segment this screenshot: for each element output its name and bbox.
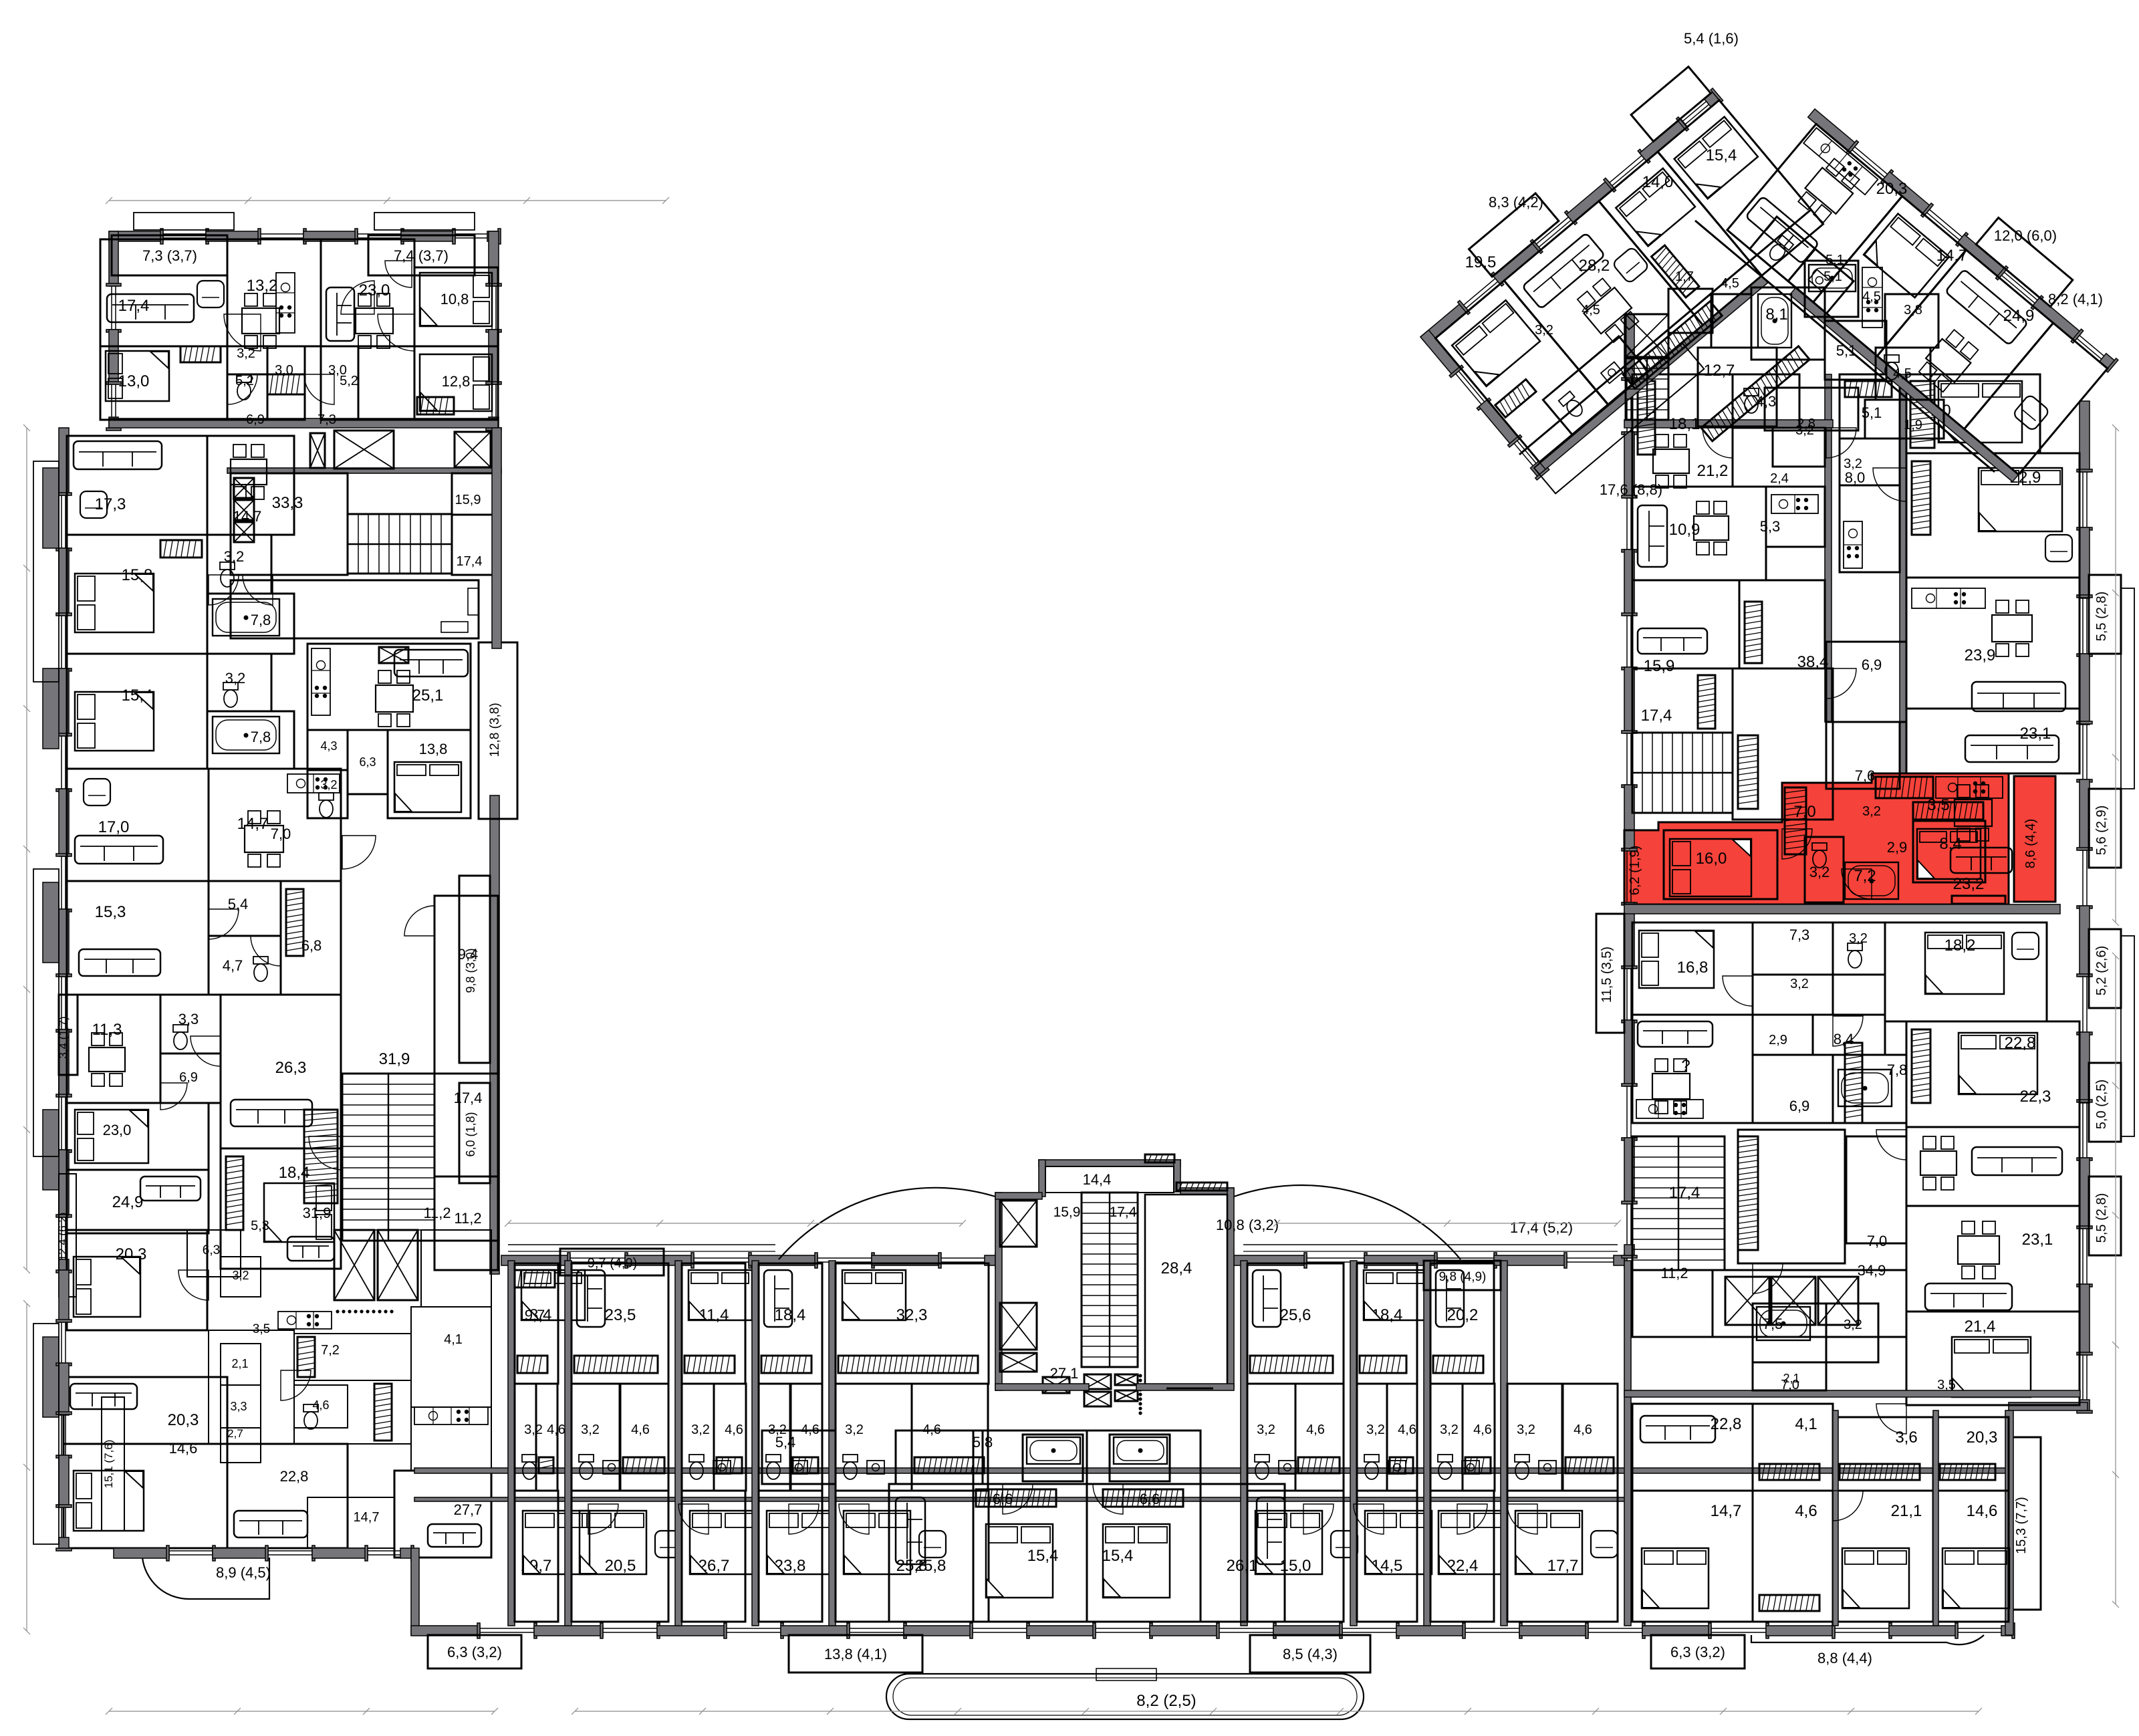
svg-text:8,2 (4,1): 8,2 (4,1) (2048, 291, 2103, 307)
svg-text:3,2: 3,2 (1809, 864, 1830, 880)
svg-text:28,2: 28,2 (1579, 257, 1610, 275)
svg-text:3,2: 3,2 (1844, 1318, 1862, 1332)
svg-text:32,3: 32,3 (896, 1306, 928, 1324)
svg-text:3,2: 3,2 (1440, 1422, 1459, 1437)
svg-text:10,8: 10,8 (441, 291, 469, 307)
svg-text:5,4 (1,6): 5,4 (1,6) (1684, 30, 1739, 47)
svg-text:3,2: 3,2 (1257, 1422, 1275, 1437)
svg-text:20,3: 20,3 (168, 1411, 199, 1429)
svg-text:2,9: 2,9 (1769, 1033, 1787, 1047)
svg-text:25,8: 25,8 (915, 1557, 947, 1575)
svg-text:3,2: 3,2 (691, 1422, 710, 1437)
svg-text:3,2: 3,2 (1790, 977, 1809, 991)
svg-text:8,3 (4,2): 8,3 (4,2) (1489, 194, 1543, 211)
svg-text:22,3: 22,3 (2020, 1088, 2051, 1106)
svg-text:25,6: 25,6 (1280, 1306, 1311, 1324)
svg-text:4,6: 4,6 (1398, 1422, 1416, 1437)
svg-text:9,7: 9,7 (525, 1307, 545, 1324)
svg-text:15,3 (7,7): 15,3 (7,7) (2014, 1497, 2029, 1554)
svg-text:3,2: 3,2 (320, 778, 337, 791)
svg-text:17,4: 17,4 (1110, 1205, 1137, 1220)
svg-text:8,6 (4,4): 8,6 (4,4) (2023, 819, 2038, 868)
svg-text:7,2: 7,2 (321, 1343, 340, 1358)
svg-text:7,8: 7,8 (251, 729, 271, 745)
svg-text:3,2: 3,2 (232, 1269, 249, 1282)
svg-text:26,1: 26,1 (1227, 1557, 1258, 1575)
svg-text:4,1: 4,1 (444, 1332, 463, 1347)
svg-text:15,4: 15,4 (1027, 1547, 1059, 1565)
svg-text:5,8: 5,8 (973, 1434, 993, 1451)
svg-text:2,4: 2,4 (1770, 471, 1789, 486)
svg-text:2,8: 2,8 (1797, 416, 1815, 431)
svg-text:17,3: 17,3 (95, 495, 126, 513)
svg-text:4,5: 4,5 (1893, 366, 1912, 381)
svg-text:1,9: 1,9 (1904, 418, 1922, 432)
svg-text:4,6: 4,6 (312, 1398, 329, 1412)
svg-text:10,9: 10,9 (1669, 521, 1701, 539)
svg-text:15,9: 15,9 (1644, 657, 1675, 675)
svg-text:5,0 (2,5): 5,0 (2,5) (2094, 1080, 2109, 1129)
svg-text:6,3 (3,2): 6,3 (3,2) (447, 1644, 502, 1660)
svg-text:17,4: 17,4 (1669, 1184, 1701, 1202)
svg-text:3,2: 3,2 (1535, 323, 1553, 338)
svg-text:4,6: 4,6 (725, 1422, 743, 1437)
svg-text:23,0: 23,0 (103, 1122, 132, 1138)
svg-text:22,8: 22,8 (2005, 1034, 2036, 1052)
svg-text:15,3: 15,3 (95, 903, 126, 921)
svg-text:7,3 (3,7): 7,3 (3,7) (142, 247, 197, 264)
svg-text:21,4: 21,4 (1965, 1318, 1996, 1336)
svg-text:17,4: 17,4 (457, 554, 483, 569)
svg-text:2,1: 2,1 (231, 1357, 248, 1370)
svg-text:12,8 (3,8): 12,8 (3,8) (488, 703, 502, 757)
svg-text:10,8 (3,2): 10,8 (3,2) (1216, 1217, 1279, 1233)
svg-text:24,9: 24,9 (2003, 307, 2035, 325)
svg-text:3,2: 3,2 (524, 1422, 543, 1437)
svg-text:2,7: 2,7 (227, 1427, 243, 1440)
svg-text:6,9: 6,9 (1862, 656, 1882, 673)
svg-text:23,2: 23,2 (1953, 875, 1985, 893)
svg-text:20,3: 20,3 (1967, 1429, 1998, 1447)
svg-text:26,3: 26,3 (275, 1059, 307, 1077)
svg-text:14,0: 14,0 (1642, 173, 1674, 191)
svg-text:5,5 (2,8): 5,5 (2,8) (2094, 1193, 2109, 1243)
svg-text:20,3: 20,3 (1876, 180, 1908, 198)
svg-text:23,1: 23,1 (2020, 725, 2051, 743)
svg-text:19,5: 19,5 (1465, 253, 1497, 271)
svg-text:7,3: 7,3 (318, 412, 336, 427)
svg-text:17,6 (8,8): 17,6 (8,8) (1600, 481, 1662, 498)
svg-text:14,4: 14,4 (1083, 1171, 1112, 1188)
svg-text:14,7: 14,7 (1711, 1502, 1742, 1520)
svg-text:14,6: 14,6 (1967, 1502, 1998, 1520)
svg-text:11,2: 11,2 (454, 1210, 481, 1227)
svg-text:3,5: 3,5 (253, 1322, 270, 1336)
svg-text:15,4: 15,4 (1102, 1547, 1134, 1565)
svg-text:3,2: 3,2 (1862, 804, 1881, 819)
svg-text:8,9 (4,5): 8,9 (4,5) (216, 1564, 271, 1581)
svg-text:7,8: 7,8 (251, 612, 271, 628)
svg-text:5,6 (2,9): 5,6 (2,9) (2094, 805, 2109, 855)
svg-text:22,8: 22,8 (280, 1468, 309, 1485)
svg-text:6,9: 6,9 (1789, 1098, 1810, 1114)
svg-text:11,3: 11,3 (92, 1021, 122, 1039)
svg-text:7,5: 7,5 (1763, 1316, 1783, 1332)
svg-text:9,8 (4,9): 9,8 (4,9) (1439, 1270, 1487, 1284)
svg-text:5,2: 5,2 (235, 374, 254, 388)
svg-text:18,4: 18,4 (775, 1306, 806, 1324)
svg-text:4,6: 4,6 (1574, 1422, 1592, 1437)
svg-text:8,5 (4,3): 8,5 (4,3) (1283, 1646, 1338, 1662)
svg-text:23,9: 23,9 (1965, 646, 1996, 664)
svg-text:5,2 (2,6): 5,2 (2,6) (2094, 946, 2109, 995)
svg-text:9,8 (3,0): 9,8 (3,0) (464, 948, 477, 993)
svg-text:15,1 (7,6): 15,1 (7,6) (102, 1440, 115, 1489)
svg-text:27,7: 27,7 (454, 1501, 483, 1518)
svg-text:21,1: 21,1 (1891, 1502, 1922, 1520)
svg-text:17,4: 17,4 (118, 297, 150, 315)
svg-text:5,5 (2,8): 5,5 (2,8) (2094, 592, 2109, 641)
svg-text:18,1: 18,1 (1669, 415, 1701, 433)
svg-text:14,7: 14,7 (233, 508, 262, 525)
svg-text:4,6: 4,6 (1473, 1422, 1492, 1437)
svg-text:17,4: 17,4 (1641, 707, 1672, 725)
svg-text:28,4: 28,4 (1161, 1259, 1192, 1277)
svg-text:6,3: 6,3 (203, 1243, 220, 1257)
svg-text:7,4 (3,7): 7,4 (3,7) (394, 247, 449, 264)
svg-text:16,8: 16,8 (1677, 959, 1709, 977)
svg-text:3,2: 3,2 (1517, 1422, 1535, 1437)
svg-text:8,0: 8,0 (1845, 469, 1866, 486)
svg-text:13,8: 13,8 (419, 741, 448, 757)
svg-text:4,6: 4,6 (631, 1422, 650, 1437)
svg-text:14,7: 14,7 (354, 1510, 380, 1525)
svg-text:3,2: 3,2 (845, 1422, 864, 1437)
svg-text:21,2: 21,2 (1697, 462, 1729, 480)
svg-text:4,5: 4,5 (1582, 303, 1600, 318)
svg-text:7,0: 7,0 (1867, 1233, 1888, 1249)
svg-text:12,0 (6,0): 12,0 (6,0) (1994, 227, 2057, 244)
svg-text:3,8: 3,8 (1904, 303, 1922, 318)
svg-text:18,2: 18,2 (1944, 937, 1976, 955)
svg-text:15,4: 15,4 (1706, 146, 1737, 164)
svg-text:33,3: 33,3 (272, 494, 303, 512)
svg-text:6,3: 6,3 (359, 755, 376, 769)
svg-text:3,2: 3,2 (1366, 1422, 1385, 1437)
svg-text:4,6: 4,6 (1795, 1502, 1817, 1520)
svg-text:1,7: 1,7 (1675, 269, 1694, 284)
svg-text:20,2: 20,2 (1447, 1306, 1479, 1324)
svg-text:6,2 (1,9): 6,2 (1,9) (1628, 846, 1642, 895)
svg-text:4,3: 4,3 (320, 739, 337, 753)
svg-text:20,5: 20,5 (605, 1557, 636, 1575)
svg-text:8,2 (2,5): 8,2 (2,5) (1136, 1692, 1196, 1710)
svg-text:24,9: 24,9 (112, 1193, 144, 1211)
svg-text:13,8 (4,1): 13,8 (4,1) (824, 1646, 887, 1662)
svg-text:31,9: 31,9 (303, 1205, 332, 1221)
svg-text:3,2: 3,2 (225, 670, 246, 687)
svg-text:14,7: 14,7 (1936, 247, 1968, 265)
svg-text:3,3: 3,3 (230, 1400, 247, 1413)
svg-text:4,5: 4,5 (1721, 276, 1739, 291)
svg-text:5,2: 5,2 (340, 374, 358, 388)
svg-text:23,1: 23,1 (2022, 1231, 2053, 1249)
svg-text:5,4: 5,4 (228, 896, 249, 912)
svg-text:5,3: 5,3 (1760, 518, 1781, 535)
svg-text:?: ? (1681, 1057, 1690, 1075)
svg-text:17,0: 17,0 (98, 818, 130, 836)
svg-text:15,9: 15,9 (1053, 1205, 1081, 1220)
svg-text:7,0: 7,0 (271, 826, 291, 842)
svg-text:4,1: 4,1 (1795, 1415, 1817, 1433)
svg-text:23,5: 23,5 (605, 1306, 636, 1324)
svg-text:5,1: 5,1 (1836, 342, 1857, 359)
svg-text:13,2: 13,2 (247, 277, 278, 295)
svg-text:27,1: 27,1 (1050, 1365, 1079, 1382)
svg-text:17,7: 17,7 (1547, 1557, 1579, 1575)
svg-text:6,6: 6,6 (1140, 1491, 1160, 1507)
svg-text:8,4: 8,4 (1834, 1031, 1854, 1047)
svg-text:5,4: 5,4 (775, 1434, 796, 1451)
svg-text:25,1: 25,1 (412, 687, 444, 705)
svg-text:11,2: 11,2 (423, 1205, 451, 1221)
svg-text:6,3 (3,2): 6,3 (3,2) (1670, 1644, 1725, 1660)
svg-text:6,9: 6,9 (246, 412, 265, 427)
svg-text:7,3: 7,3 (1789, 926, 1810, 943)
svg-text:2,1: 2,1 (1783, 1372, 1799, 1385)
svg-text:4,7: 4,7 (223, 957, 243, 974)
svg-text:12,7: 12,7 (1704, 362, 1735, 380)
svg-text:16,0: 16,0 (1696, 850, 1727, 868)
svg-text:34,9: 34,9 (1858, 1262, 1886, 1279)
svg-text:11,5 (3,5): 11,5 (3,5) (1600, 947, 1614, 1003)
svg-text:8,8 (4,4): 8,8 (4,4) (1817, 1650, 1872, 1666)
svg-text:31,9: 31,9 (379, 1050, 410, 1068)
svg-text:11,4: 11,4 (699, 1306, 729, 1324)
svg-text:5,3: 5,3 (251, 1219, 269, 1233)
svg-text:15,9: 15,9 (455, 493, 481, 507)
svg-text:4,6: 4,6 (547, 1422, 565, 1437)
svg-text:17,4: 17,4 (454, 1090, 483, 1106)
svg-text:38,4: 38,4 (1797, 653, 1829, 671)
svg-text:3,2: 3,2 (581, 1422, 600, 1437)
svg-text:11,2: 11,2 (1660, 1265, 1688, 1281)
svg-text:12,8: 12,8 (442, 373, 471, 390)
svg-text:6,0 (1,8): 6,0 (1,8) (464, 1112, 477, 1156)
svg-text:4,6: 4,6 (1306, 1422, 1325, 1437)
svg-text:14,6: 14,6 (169, 1440, 198, 1457)
svg-text:9,7 (4,9): 9,7 (4,9) (588, 1256, 637, 1271)
svg-text:2,9: 2,9 (1887, 839, 1908, 856)
svg-text:17,4 (5,2): 17,4 (5,2) (1510, 1219, 1573, 1236)
